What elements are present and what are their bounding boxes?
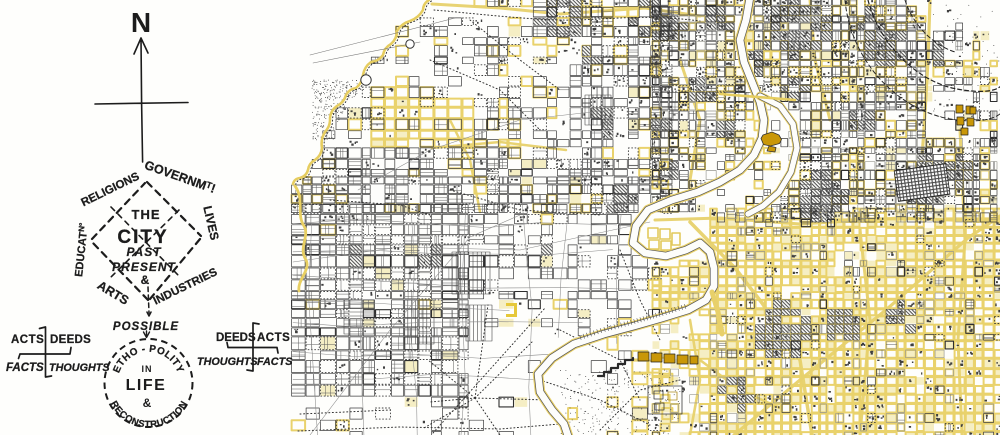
svg-text:IN: IN <box>142 364 153 374</box>
svg-text:N: N <box>131 7 151 38</box>
svg-text:&: & <box>141 273 150 287</box>
svg-text:THOUGHTS: THOUGHTS <box>49 362 110 374</box>
svg-text:FACTS: FACTS <box>257 356 293 368</box>
svg-text:PAST: PAST <box>126 245 162 259</box>
svg-text:FACTS: FACTS <box>6 362 44 374</box>
svg-text:THE: THE <box>132 207 161 222</box>
svg-text:THOUGHTS: THOUGHTS <box>197 356 258 368</box>
svg-text:DEEDS: DEEDS <box>216 332 256 344</box>
svg-text:ACTS: ACTS <box>257 332 290 344</box>
svg-text:ACTS: ACTS <box>11 334 44 346</box>
svg-text:PRESENT: PRESENT <box>112 260 176 274</box>
svg-text:&: & <box>143 396 152 410</box>
svg-text:DEEDS: DEEDS <box>50 334 91 346</box>
svg-text:LIFE: LIFE <box>126 377 167 394</box>
